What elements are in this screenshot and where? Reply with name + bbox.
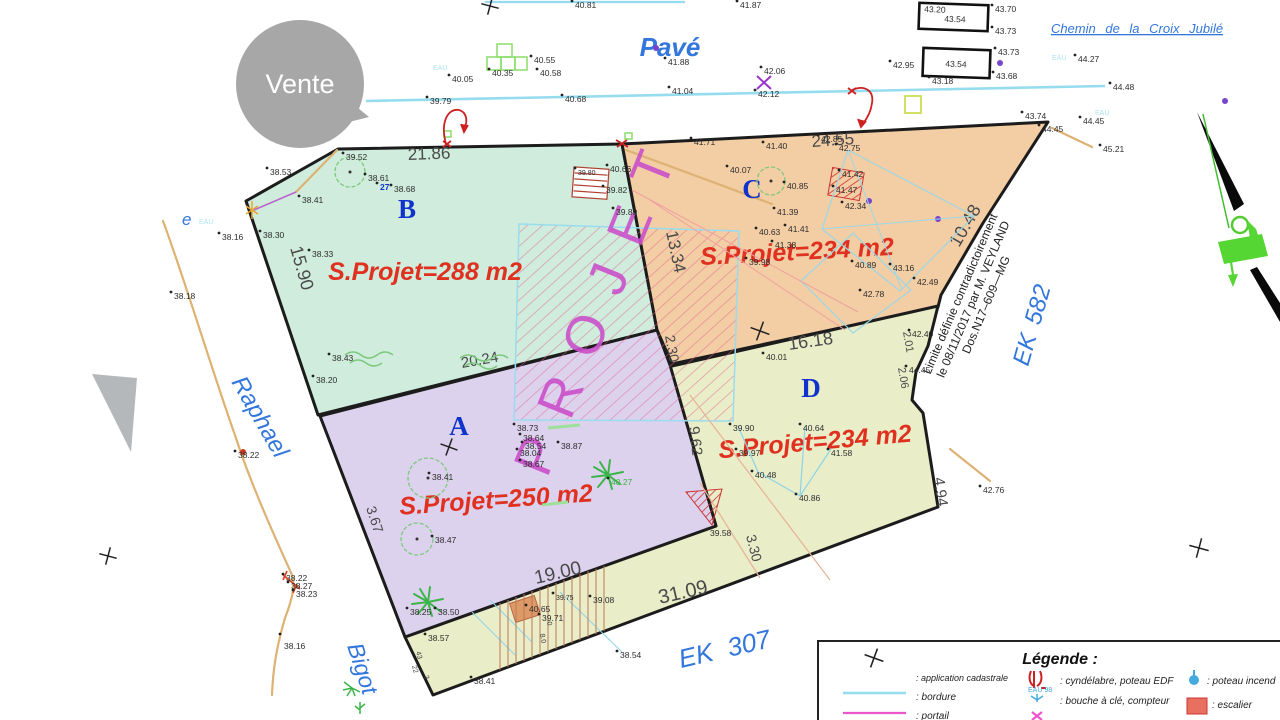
svg-text:EAU: EAU — [199, 219, 213, 226]
svg-text:EAU: EAU — [1095, 110, 1109, 117]
svg-text:Légende :: Légende : — [1022, 651, 1098, 668]
svg-text:38.18: 38.18 — [174, 291, 196, 301]
svg-text:40.27: 40.27 — [611, 477, 633, 487]
svg-text:40.35: 40.35 — [492, 68, 514, 78]
svg-text:42.75: 42.75 — [839, 143, 861, 153]
svg-text:40.58: 40.58 — [540, 68, 562, 78]
svg-text:43.73: 43.73 — [998, 47, 1020, 57]
svg-text:42.95: 42.95 — [893, 60, 915, 70]
svg-text:45.21: 45.21 — [1103, 144, 1125, 154]
svg-text:38.53: 38.53 — [270, 167, 292, 177]
svg-text:38.50: 38.50 — [438, 607, 460, 617]
svg-text:41.47: 41.47 — [836, 185, 858, 195]
svg-text:38.67: 38.67 — [523, 459, 545, 469]
svg-text:40.48: 40.48 — [755, 470, 777, 480]
svg-text:41.88: 41.88 — [668, 57, 690, 67]
svg-text:38.20: 38.20 — [316, 375, 338, 385]
svg-text:Chemin de la Croix Jubilé: Chemin de la Croix Jubilé — [1051, 21, 1223, 36]
svg-text:43.54: 43.54 — [944, 14, 966, 25]
svg-text:42.12: 42.12 — [758, 89, 780, 99]
svg-text:39.82: 39.82 — [606, 185, 628, 195]
svg-text:40.55: 40.55 — [534, 55, 556, 65]
svg-text:42.34: 42.34 — [845, 201, 867, 211]
svg-text:42.78: 42.78 — [863, 289, 885, 299]
svg-text:: portail: : portail — [916, 711, 950, 720]
svg-text:e: e — [182, 210, 191, 229]
svg-text:40.64: 40.64 — [803, 423, 825, 433]
svg-text:38.41: 38.41 — [432, 472, 454, 482]
svg-text:39.08: 39.08 — [593, 595, 615, 605]
svg-text:A: A — [449, 411, 469, 441]
svg-text:38.16: 38.16 — [222, 232, 244, 242]
svg-text:38.23: 38.23 — [296, 589, 318, 599]
svg-text:38.33: 38.33 — [312, 249, 334, 259]
svg-text:44.45: 44.45 — [1083, 116, 1105, 126]
svg-text:EAU 98: EAU 98 — [1028, 687, 1052, 694]
svg-text:40.66: 40.66 — [610, 164, 632, 174]
svg-text:39.98: 39.98 — [749, 257, 771, 267]
svg-text:39.90: 39.90 — [733, 423, 755, 433]
svg-text:: bouche à clé, compteur: : bouche à clé, compteur — [1060, 696, 1170, 707]
svg-text:38.16: 38.16 — [284, 641, 306, 651]
svg-text:40.07: 40.07 — [730, 165, 752, 175]
svg-text:39.52: 39.52 — [346, 152, 368, 162]
svg-text:38.25: 38.25 — [410, 607, 432, 617]
svg-text:43.74: 43.74 — [1025, 111, 1047, 121]
svg-text:43.16: 43.16 — [893, 263, 915, 273]
svg-text:38.73: 38.73 — [517, 423, 539, 433]
svg-text:40.86: 40.86 — [799, 493, 821, 503]
svg-text:44.48: 44.48 — [1113, 82, 1135, 92]
svg-text:38.57: 38.57 — [428, 633, 450, 643]
svg-text:38.30: 38.30 — [263, 230, 285, 240]
svg-text:40.63: 40.63 — [759, 227, 781, 237]
svg-text:42.06: 42.06 — [764, 66, 786, 76]
svg-text:41.39: 41.39 — [777, 207, 799, 217]
svg-text:42.40: 42.40 — [912, 329, 934, 339]
svg-text:EAU: EAU — [433, 65, 447, 72]
svg-text:C: C — [742, 174, 762, 204]
svg-text:39.79: 39.79 — [430, 96, 452, 106]
svg-text:38.41: 38.41 — [302, 195, 324, 205]
svg-text:: bordure: : bordure — [916, 692, 956, 703]
svg-text:43.68: 43.68 — [996, 71, 1018, 81]
svg-text:43.73: 43.73 — [995, 26, 1017, 36]
svg-text:41.71: 41.71 — [694, 137, 716, 147]
svg-text:Vente: Vente — [265, 69, 334, 99]
svg-text:39.58: 39.58 — [710, 528, 732, 538]
svg-text:41.38: 41.38 — [775, 240, 797, 250]
svg-text:41.42: 41.42 — [842, 169, 864, 179]
svg-text:38.04: 38.04 — [520, 448, 542, 458]
svg-text:38.22: 38.22 — [238, 450, 260, 460]
svg-text:: escalier: : escalier — [1212, 700, 1253, 711]
svg-text:38.43: 38.43 — [332, 353, 354, 363]
svg-text:41.04: 41.04 — [672, 86, 694, 96]
svg-text:41.41: 41.41 — [788, 224, 810, 234]
svg-text:43.70: 43.70 — [995, 4, 1017, 14]
svg-text:44.45: 44.45 — [909, 365, 931, 375]
svg-text:38.41: 38.41 — [474, 676, 496, 686]
svg-text:40.81: 40.81 — [575, 0, 597, 10]
svg-text:40.68: 40.68 — [565, 94, 587, 104]
svg-text:40.01: 40.01 — [766, 352, 788, 362]
svg-text:EAU: EAU — [1052, 55, 1066, 62]
svg-text:40.05: 40.05 — [452, 74, 474, 84]
svg-text:40.85: 40.85 — [787, 181, 809, 191]
svg-text:41.87: 41.87 — [740, 0, 762, 10]
svg-text:39.75: 39.75 — [556, 595, 574, 602]
svg-text:: application cadastrale: : application cadastrale — [916, 673, 1008, 683]
svg-text:: poteau incend: : poteau incend — [1207, 676, 1276, 687]
svg-text:: cyndélabre, poteau EDF: : cyndélabre, poteau EDF — [1060, 676, 1174, 687]
svg-text:41.58: 41.58 — [831, 448, 853, 458]
svg-text:27: 27 — [380, 182, 390, 192]
svg-text:S.Projet=288 m2: S.Projet=288 m2 — [328, 258, 522, 286]
svg-text:44.45: 44.45 — [1042, 124, 1064, 134]
svg-text:38.87: 38.87 — [561, 441, 583, 451]
svg-text:44.27: 44.27 — [1078, 54, 1100, 64]
svg-text:39.80: 39.80 — [578, 170, 596, 177]
svg-text:B: B — [398, 194, 416, 224]
svg-text:38.54: 38.54 — [620, 650, 642, 660]
svg-text:39.89: 39.89 — [616, 207, 638, 217]
svg-text:43.54: 43.54 — [945, 59, 967, 70]
svg-text:39.97: 39.97 — [739, 448, 761, 458]
svg-text:38.47: 38.47 — [435, 535, 457, 545]
svg-text:41.40: 41.40 — [766, 141, 788, 151]
svg-text:43.18: 43.18 — [932, 76, 954, 86]
svg-text:D: D — [801, 373, 821, 403]
svg-text:9.62: 9.62 — [685, 425, 705, 456]
svg-text:42.76: 42.76 — [983, 485, 1005, 495]
svg-text:38.68: 38.68 — [394, 184, 416, 194]
svg-text:40.89: 40.89 — [855, 260, 877, 270]
svg-text:43.20: 43.20 — [924, 4, 946, 15]
svg-text:42.49: 42.49 — [917, 277, 939, 287]
